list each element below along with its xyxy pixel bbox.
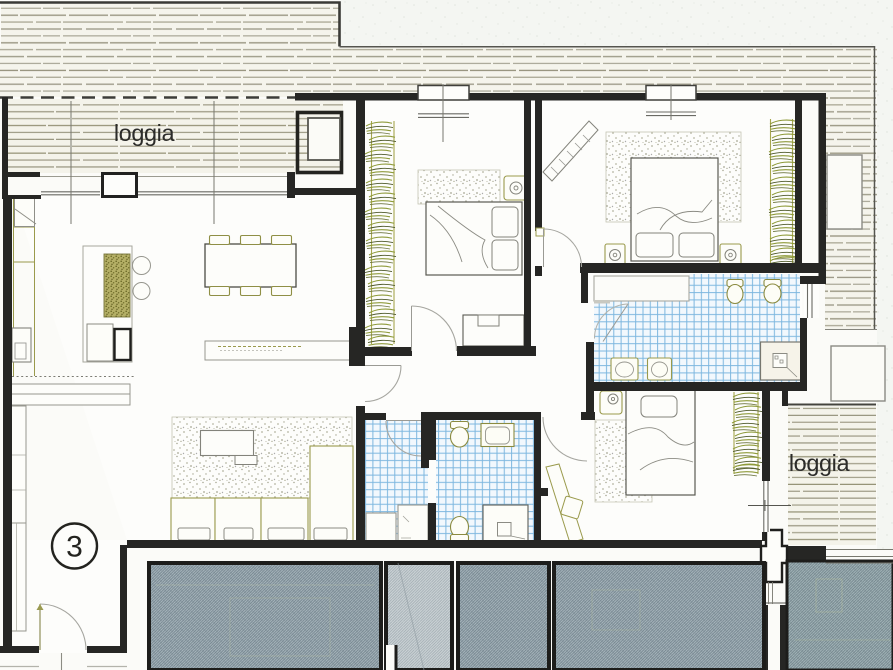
svg-text:3: 3 bbox=[66, 531, 83, 564]
svg-text:loggia: loggia bbox=[114, 120, 176, 146]
svg-text:loggia: loggia bbox=[789, 450, 851, 476]
